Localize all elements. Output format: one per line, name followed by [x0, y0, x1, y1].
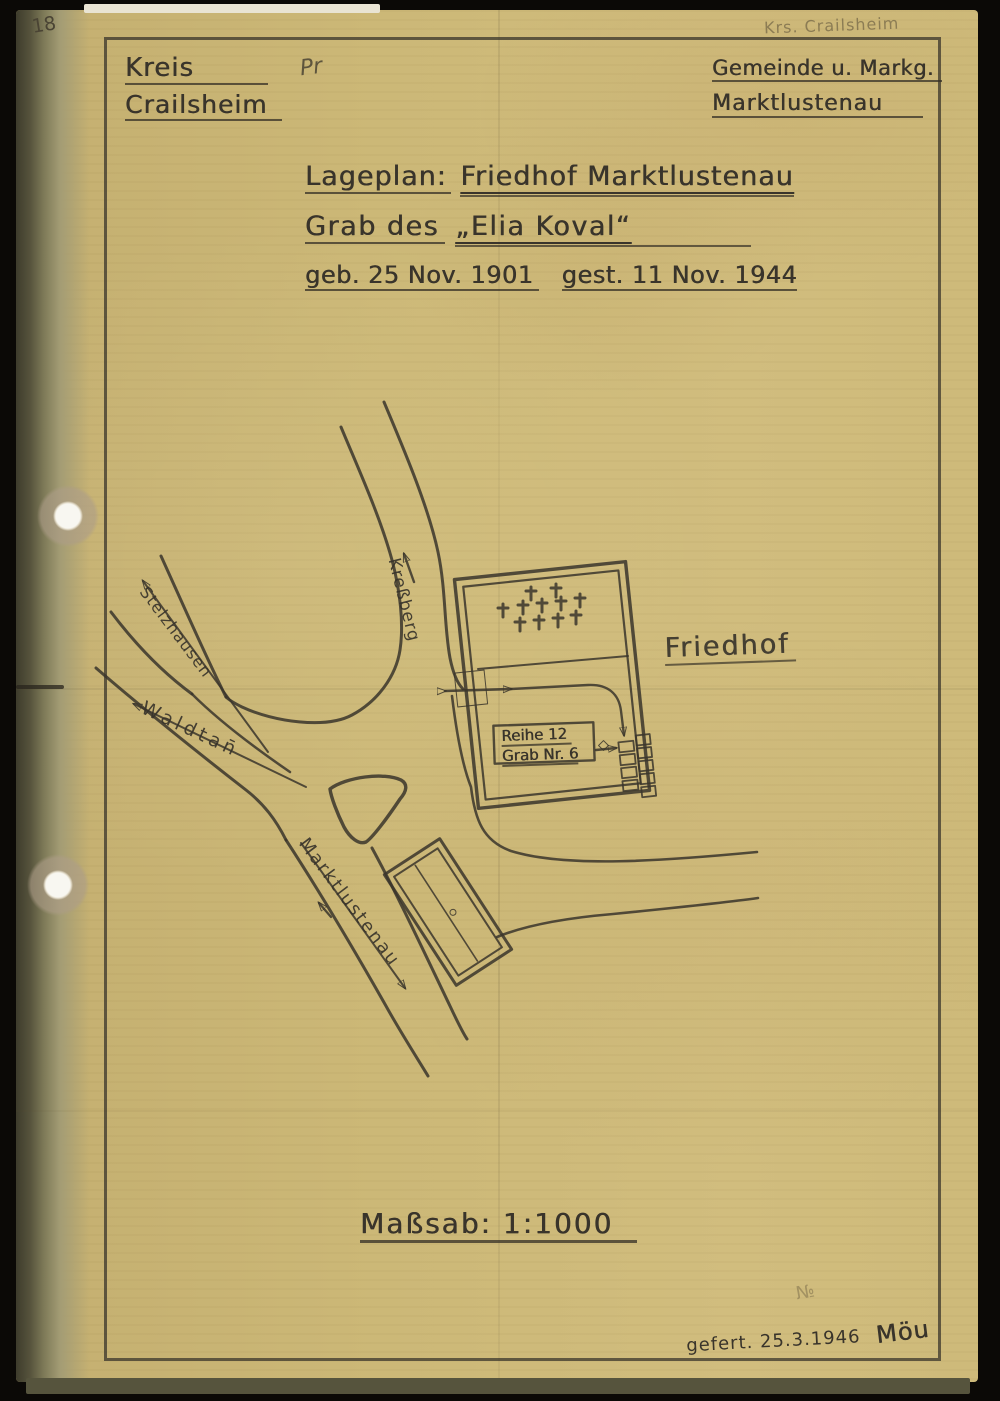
cross-icon [518, 601, 528, 614]
grave-cell [620, 754, 636, 766]
grave-crosses [498, 584, 585, 631]
cross-icon [553, 614, 563, 627]
road-marktlustenau-left-edge [286, 840, 428, 1076]
grave-cell [621, 767, 637, 779]
road-east-lower [497, 898, 758, 937]
cross-icon [551, 584, 561, 597]
cross-icon [537, 599, 547, 612]
cross-icon [498, 604, 508, 617]
signature: Möu [874, 1314, 931, 1350]
cross-icon [534, 616, 544, 629]
scale-note: Maßsab: 1:1000 [360, 1206, 637, 1241]
road-cemetery-west-and-east-upper [452, 696, 757, 861]
cross-icon [556, 597, 566, 610]
building-dot [449, 908, 457, 916]
grave-number-label: Grab Nr. 6 [502, 744, 579, 767]
cemetery-label: Friedhof [664, 628, 796, 666]
cemetery-inner-wall [463, 570, 641, 799]
cemetery-gate-gap [454, 670, 487, 707]
cemetery-divider-path [478, 656, 628, 669]
traffic-island [330, 776, 406, 843]
cross-icon [575, 594, 585, 607]
cemetery-enclosure [445, 561, 657, 815]
grave-row-label: Reihe 12 [501, 725, 571, 747]
faint-pencil-mark: № [794, 1281, 816, 1306]
scanned-document: 18 Krs. Crailsheim Kreis Crailsheim Pr G… [0, 0, 1000, 1401]
gate-double-arrow [445, 689, 511, 691]
grave-label-text: Reihe 12 Grab Nr. 6 [501, 724, 579, 765]
scale-label: Maßsab: 1:1000 [360, 1207, 637, 1243]
cross-icon [515, 618, 525, 631]
road-kressberg-right-edge [384, 402, 463, 689]
cross-icon [571, 611, 581, 624]
road-kressberg-left-edge-sweep [226, 427, 402, 723]
cross-icon [526, 587, 536, 600]
grave-cell-marked [618, 741, 634, 753]
